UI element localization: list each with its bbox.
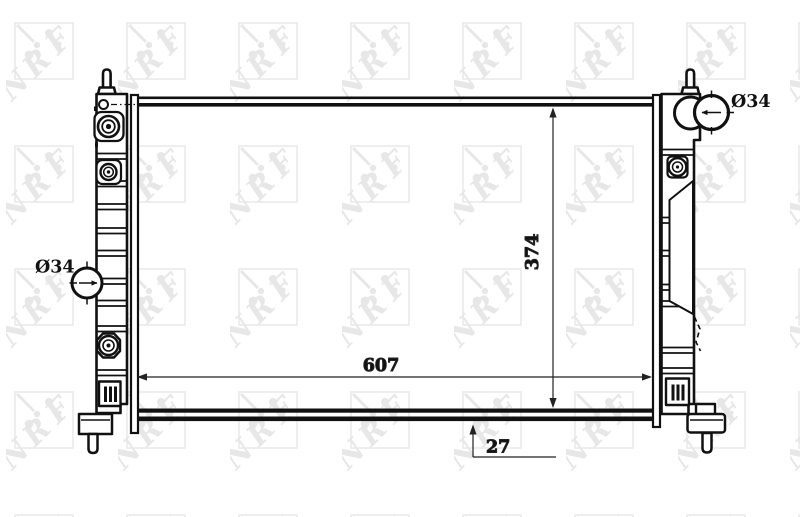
- core-right-side-plate: [653, 95, 660, 427]
- radiator-technical-drawing: N R F: [0, 0, 800, 517]
- radiator-diagram-page: N R F: [0, 0, 800, 517]
- right-mounting-boss: [668, 157, 688, 178]
- core-depth-label: 27: [486, 438, 510, 458]
- left-bleed-hole: [99, 100, 108, 109]
- left-mounting-boss-lower: [97, 160, 122, 184]
- left-port-diameter-label: Ø34: [35, 258, 75, 278]
- core-height-label: 374: [523, 234, 543, 271]
- core-left-side-plate: [131, 95, 138, 433]
- right-tank-panel: [670, 181, 694, 314]
- right-slot-bracket: [666, 379, 689, 406]
- left-slot-bracket: [99, 382, 121, 407]
- core-top-edge: [138, 97, 653, 100]
- right-port-diameter-label: Ø34: [731, 92, 771, 112]
- core-width-label: 607: [363, 356, 400, 376]
- left-mounting-boss-upper: [94, 107, 124, 148]
- left-hex-mount: [97, 334, 120, 358]
- core-bottom-edge: [138, 409, 653, 413]
